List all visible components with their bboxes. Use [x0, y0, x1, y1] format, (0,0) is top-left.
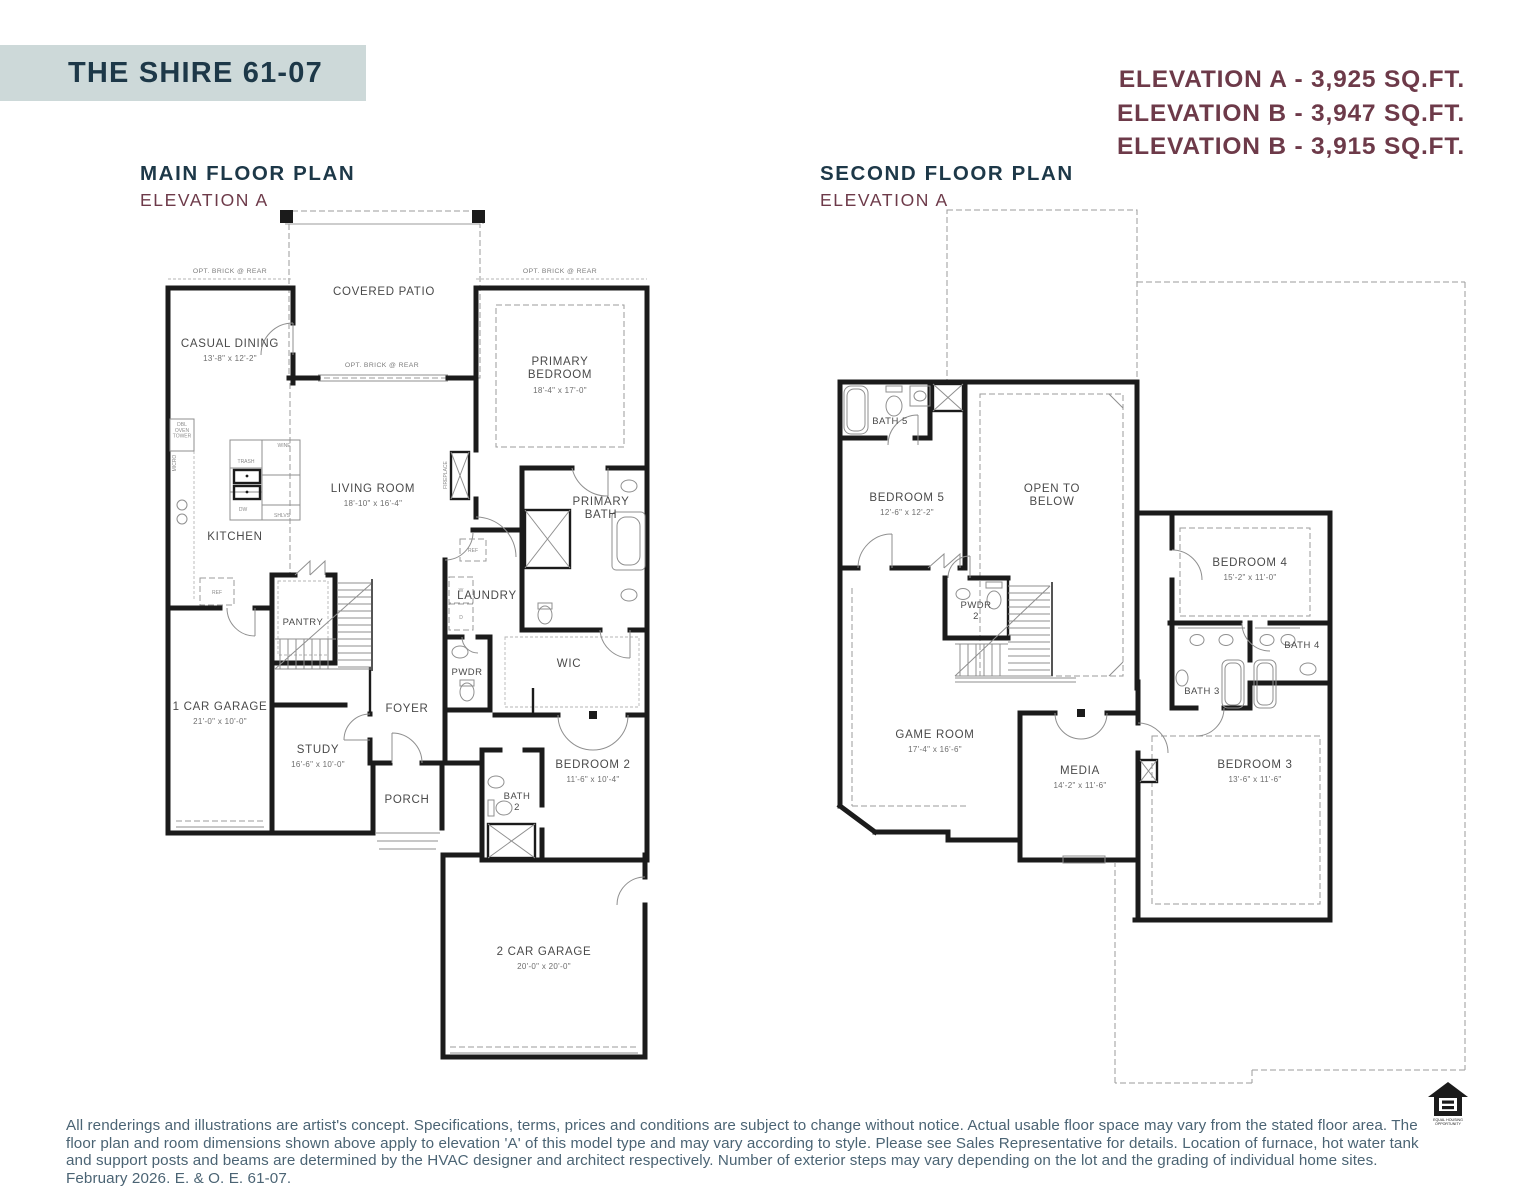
- main-walls: [168, 288, 647, 1057]
- room-label-bedroom-5: BEDROOM 5: [869, 492, 944, 504]
- room-label-bedroom-2: BEDROOM 2: [555, 759, 630, 771]
- room-label-laundry: LAUNDRY: [457, 590, 517, 602]
- room-label-primary-bedroom: PRIMARYBEDROOM: [528, 356, 592, 381]
- room-label-wic: WIC: [557, 658, 581, 670]
- room-label-living-room: LIVING ROOM: [331, 483, 415, 495]
- room-label-porch: PORCH: [384, 794, 429, 806]
- dryer-label: D: [459, 615, 463, 621]
- room-label-game-room: GAME ROOM: [895, 729, 974, 741]
- main-floor-plan-heading: MAIN FLOOR PLAN ELEVATION A: [140, 162, 355, 211]
- elevation-sqft-b2: ELEVATION B - 3,915 SQ.FT.: [1117, 130, 1465, 164]
- dw-label: DW: [239, 507, 248, 513]
- second-fixtures: [844, 384, 1316, 863]
- room-label-bath-2: BATH2: [504, 791, 531, 813]
- second-room-labels: BATH 5 BEDROOM 5 12'-6" x 12'-2" OPEN TO…: [869, 416, 1319, 790]
- room-dims-media: 14'-2" x 11'-6": [1053, 781, 1106, 790]
- room-label-pantry: PANTRY: [283, 617, 324, 628]
- room-dims-casual-dining: 13'-8" x 12'-2": [203, 354, 257, 363]
- room-dims-bedroom-2: 11'-6" x 10'-4": [566, 775, 619, 784]
- opt-brick-rear-left-label: OPT. BRICK @ REAR: [193, 268, 267, 275]
- micro-label: MICRO: [172, 455, 178, 472]
- room-label-media: MEDIA: [1060, 765, 1100, 777]
- room-label-bath-5: BATH 5: [872, 416, 908, 427]
- second-dashed-outlines: [852, 210, 1465, 1083]
- room-label-bath-3: BATH 3: [1184, 686, 1220, 697]
- room-dims-bedroom-4: 15'-2" x 11'-0": [1223, 573, 1276, 582]
- room-label-pwdr: PWDR: [451, 667, 482, 678]
- main-room-labels: OPT. BRICK @ REAR OPT. BRICK @ REAR OPT.…: [172, 268, 631, 971]
- room-dims-2-car-garage: 20'-0" x 20'-0": [517, 962, 571, 971]
- room-dims-1-car-garage: 21'-0" x 10'-0": [193, 717, 247, 726]
- ref-laundry-label: REF: [468, 548, 478, 554]
- room-label-bedroom-3: BEDROOM 3: [1217, 759, 1292, 771]
- elevation-sqft-a: ELEVATION A - 3,925 SQ.FT.: [1117, 63, 1465, 97]
- second-floor-plan-heading: SECOND FLOOR PLAN ELEVATION A: [820, 162, 1074, 211]
- second-doors: [858, 415, 1270, 753]
- room-label-covered-patio: COVERED PATIO: [333, 286, 435, 298]
- room-label-study: STUDY: [297, 744, 339, 756]
- room-dims-living-room: 18'-10" x 16'-4": [344, 499, 402, 508]
- room-label-primary-bath: PRIMARYBATH: [572, 496, 629, 521]
- page-title: THE SHIRE 61-07: [0, 45, 366, 101]
- second-floor-plan-drawing: BATH 5 BEDROOM 5 12'-6" x 12'-2" OPEN TO…: [830, 208, 1470, 1088]
- main-floor-plan-title: MAIN FLOOR PLAN: [140, 162, 355, 186]
- room-label-kitchen: KITCHEN: [207, 531, 262, 543]
- trash-label: TRASH: [238, 459, 255, 465]
- washer-label: W: [459, 588, 464, 594]
- room-label-bath-4: BATH 4: [1284, 640, 1320, 651]
- disclaimer-text: All renderings and illustrations are art…: [66, 1117, 1440, 1187]
- room-dims-bedroom-3: 13'-6" x 11'-6": [1228, 775, 1281, 784]
- second-walls: [840, 382, 1330, 920]
- room-label-foyer: FOYER: [385, 703, 428, 715]
- dbl-oven-tower-label: DBLOVENTOWER: [173, 422, 192, 440]
- eho-caption: EQUAL HOUSINGOPPORTUNITY: [1433, 1118, 1463, 1126]
- room-label-casual-dining: CASUAL DINING: [181, 338, 279, 350]
- opt-brick-rear-center-label: OPT. BRICK @ REAR: [345, 362, 419, 369]
- room-dims-game-room: 17'-4" x 16'-6": [908, 745, 962, 754]
- floor-plan-sheet: THE SHIRE 61-07 ELEVATION A - 3,925 SQ.F…: [0, 0, 1536, 1187]
- room-label-bedroom-4: BEDROOM 4: [1212, 557, 1287, 569]
- room-label-1-car-garage: 1 CAR GARAGE: [173, 701, 268, 713]
- ref-kitchen-label: REF: [212, 590, 222, 596]
- equal-housing-opportunity-logo: EQUAL HOUSINGOPPORTUNITY: [1426, 1080, 1470, 1128]
- room-label-2-car-garage: 2 CAR GARAGE: [497, 946, 592, 958]
- room-dims-bedroom-5: 12'-6" x 12'-2": [880, 508, 934, 517]
- elevation-sqft-b1: ELEVATION B - 3,947 SQ.FT.: [1117, 97, 1465, 131]
- second-floor-plan-title: SECOND FLOOR PLAN: [820, 162, 1074, 186]
- main-floor-plan-drawing: OPT. BRICK @ REAR OPT. BRICK @ REAR OPT.…: [160, 205, 660, 1105]
- opt-brick-rear-right-label: OPT. BRICK @ REAR: [523, 268, 597, 275]
- shlvs-label: SHLVS: [274, 513, 291, 519]
- plan-name-banner: THE SHIRE 61-07: [0, 45, 366, 101]
- elevation-sqft-list: ELEVATION A - 3,925 SQ.FT. ELEVATION B -…: [1117, 63, 1465, 164]
- second-stairs: [955, 582, 1076, 682]
- fireplace-label: FIREPLACE: [443, 460, 449, 488]
- room-dims-study: 16'-6" x 10'-0": [291, 760, 345, 769]
- room-label-open-to-below: OPEN TOBELOW: [1024, 483, 1080, 508]
- wine-label: WINE: [277, 443, 291, 449]
- room-dims-primary-bedroom: 18'-4" x 17'-0": [533, 386, 587, 395]
- room-label-pwdr-2: PWDR2: [960, 600, 991, 622]
